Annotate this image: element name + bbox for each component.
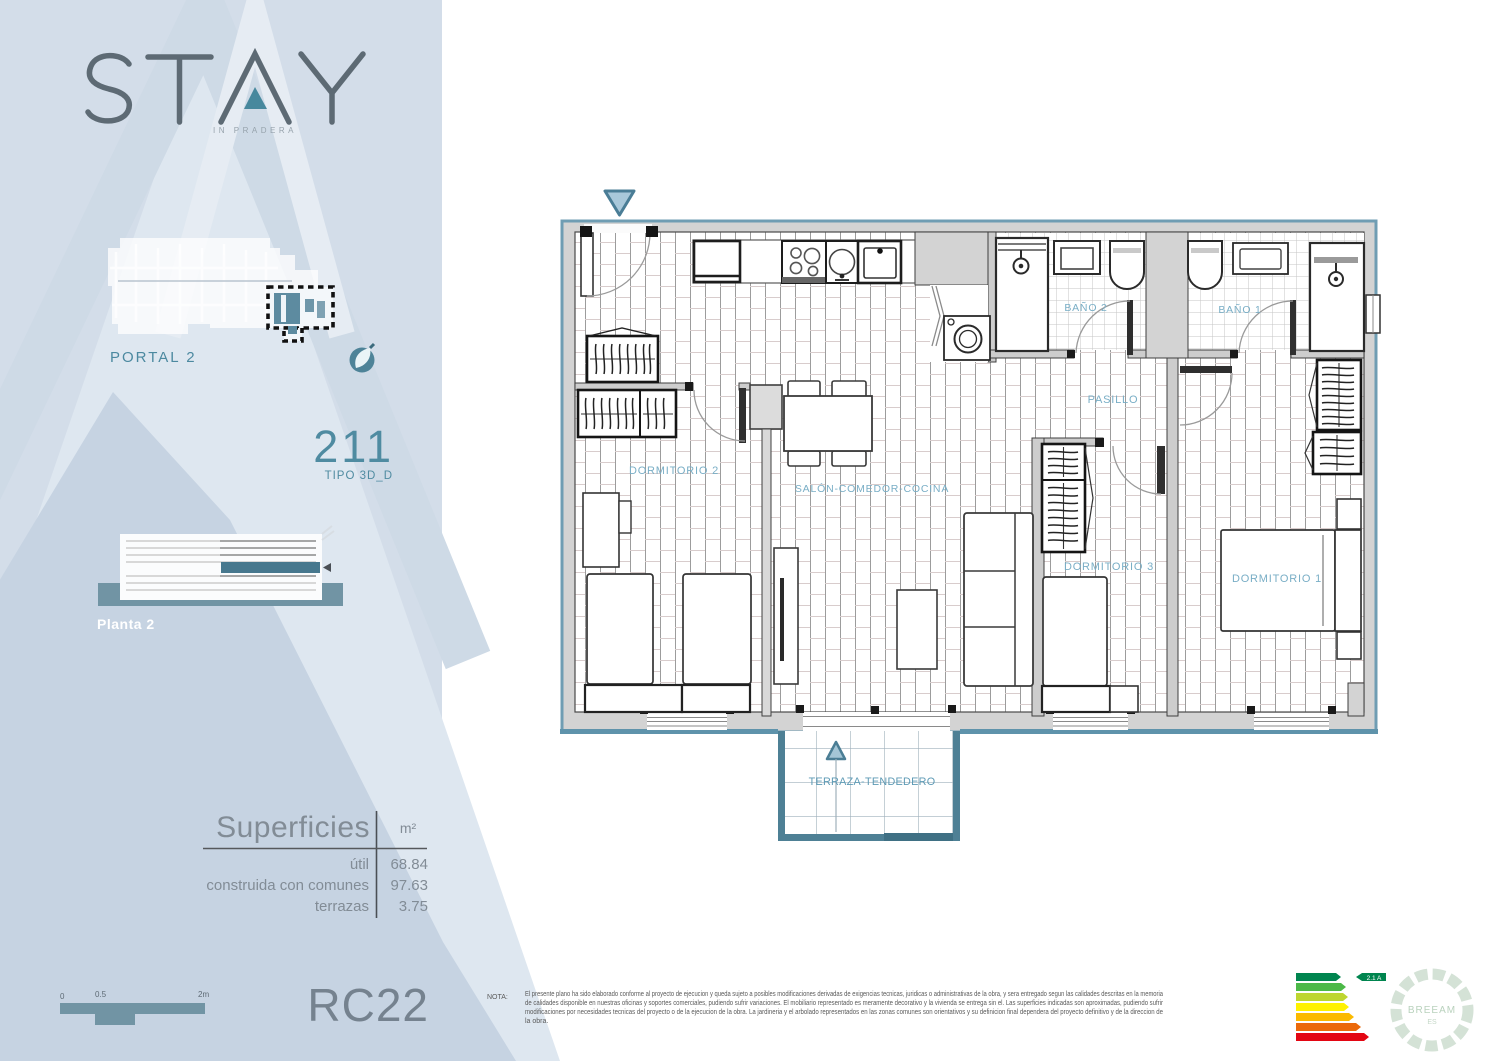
- svg-text:ES: ES: [1427, 1019, 1437, 1026]
- svg-text:DORMITORIO 1: DORMITORIO 1: [1232, 573, 1322, 585]
- svg-text:2m: 2m: [198, 990, 209, 999]
- svg-text:SALÓN-COMEDOR-COCINA: SALÓN-COMEDOR-COCINA: [795, 482, 949, 495]
- svg-text:97.63: 97.63: [390, 877, 428, 894]
- svg-text:3.75: 3.75: [399, 898, 428, 915]
- svg-text:PORTAL 2: PORTAL 2: [110, 349, 197, 366]
- svg-text:BREEAM: BREEAM: [1408, 1005, 1456, 1016]
- svg-text:TIPO 3D_D: TIPO 3D_D: [325, 470, 393, 482]
- svg-text:BAÑO 2: BAÑO 2: [1064, 301, 1107, 314]
- svg-text:68.84: 68.84: [390, 856, 428, 873]
- svg-text:DORMITORIO 2: DORMITORIO 2: [629, 465, 719, 477]
- svg-text:0: 0: [60, 992, 65, 1001]
- svg-text:m²: m²: [400, 820, 417, 836]
- svg-text:BAÑO 1: BAÑO 1: [1218, 303, 1261, 316]
- svg-text:de calidades disponible en nue: de calidades disponible en nuestras ofic…: [525, 1000, 1164, 1007]
- svg-text:IN PRADERA: IN PRADERA: [213, 126, 297, 135]
- svg-text:El presente plano ha sido elab: El presente plano ha sido elaborado conf…: [525, 991, 1163, 998]
- svg-text:Superficies: Superficies: [216, 811, 370, 844]
- svg-text:2.1 A: 2.1 A: [1367, 975, 1382, 982]
- svg-text:RC22: RC22: [307, 979, 429, 1031]
- svg-text:0.5: 0.5: [95, 990, 107, 999]
- svg-text:la obra.: la obra.: [525, 1018, 548, 1025]
- svg-text:terrazas: terrazas: [315, 898, 369, 915]
- svg-text:Planta 2: Planta 2: [97, 616, 155, 632]
- svg-text:construida con comunes: construida con comunes: [206, 877, 369, 894]
- svg-text:DORMITORIO 3: DORMITORIO 3: [1064, 561, 1154, 573]
- svg-text:NOTA:: NOTA:: [487, 994, 508, 1001]
- svg-text:modificaciones por necesidades: modificaciones por necesidades tecnicas …: [525, 1009, 1163, 1016]
- svg-text:211: 211: [313, 421, 394, 472]
- svg-text:útil: útil: [350, 856, 369, 873]
- svg-text:TERRAZA-TENDEDERO: TERRAZA-TENDEDERO: [809, 776, 936, 788]
- svg-text:PASILLO: PASILLO: [1088, 394, 1139, 406]
